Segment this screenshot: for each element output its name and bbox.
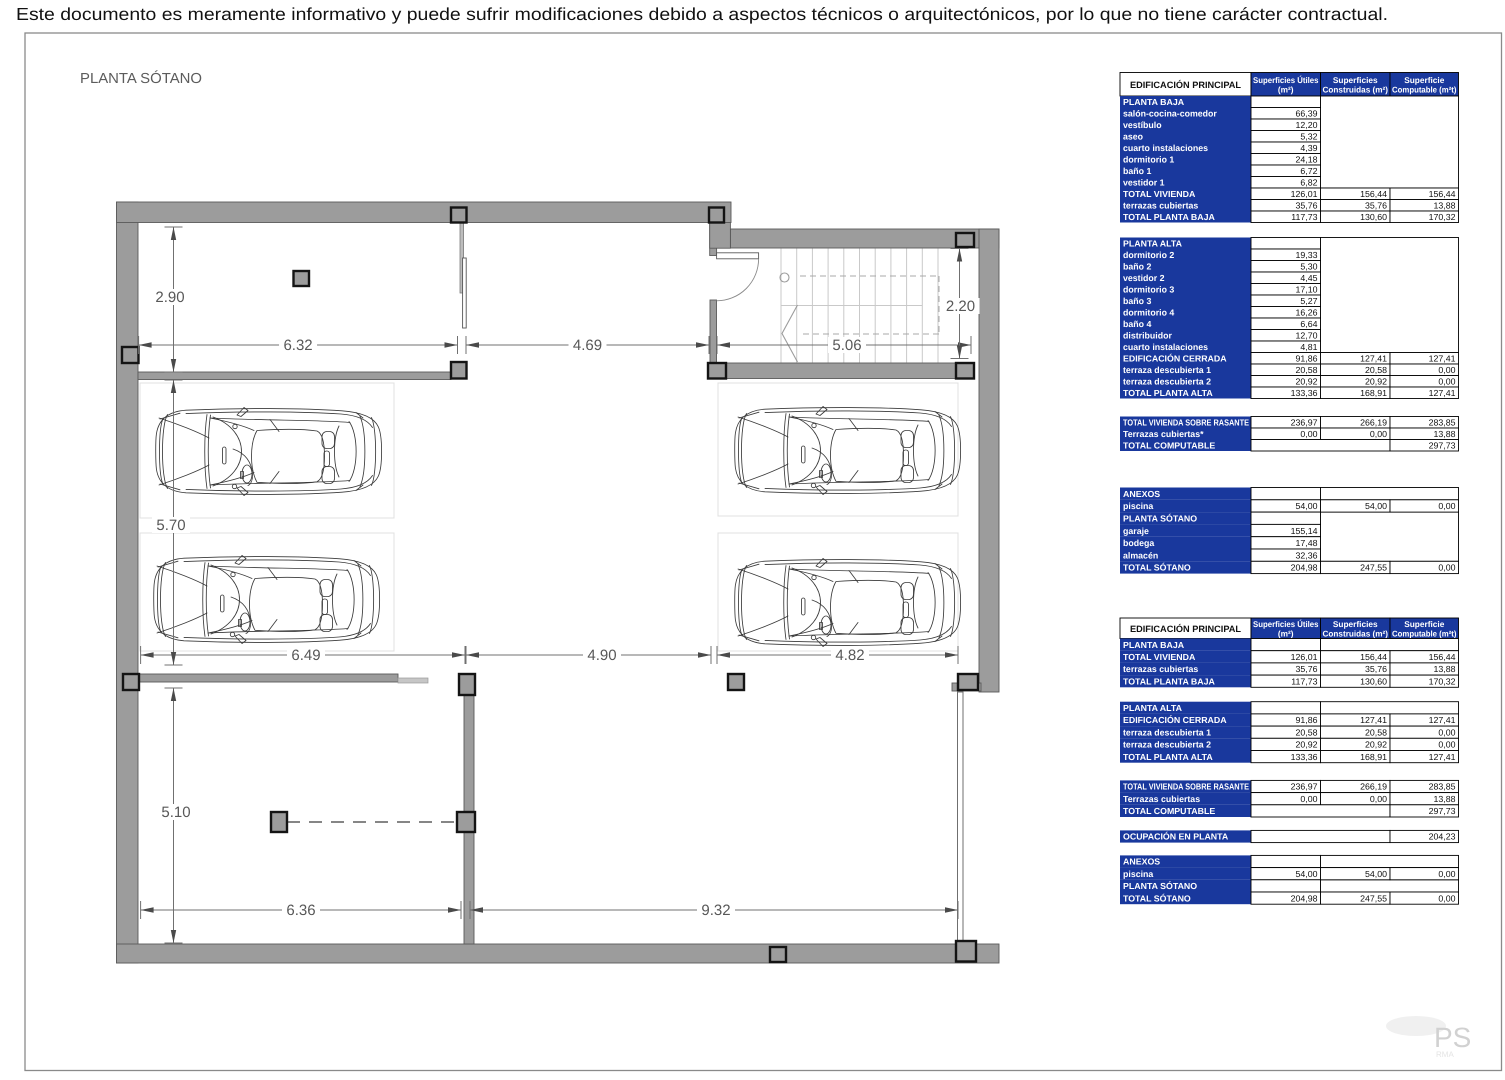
- svg-text:2.20: 2.20: [946, 298, 975, 315]
- svg-text:Construidas (m²): Construidas (m²): [1323, 629, 1389, 639]
- svg-text:12,20: 12,20: [1295, 120, 1317, 130]
- svg-text:Superficies Útiles: Superficies Útiles: [1253, 619, 1319, 629]
- svg-text:distribuidor: distribuidor: [1123, 330, 1172, 340]
- svg-text:19,33: 19,33: [1295, 250, 1317, 260]
- svg-text:terraza descubierta 1: terraza descubierta 1: [1123, 365, 1211, 375]
- svg-text:almacén: almacén: [1123, 550, 1158, 560]
- svg-text:0,00: 0,00: [1438, 376, 1455, 386]
- svg-text:TOTAL PLANTA ALTA: TOTAL PLANTA ALTA: [1123, 752, 1213, 762]
- svg-text:dormitorio 1: dormitorio 1: [1123, 154, 1174, 164]
- svg-text:EDIFICACIÓN CERRADA: EDIFICACIÓN CERRADA: [1123, 353, 1227, 363]
- svg-text:168,91: 168,91: [1360, 752, 1387, 762]
- svg-text:133,36: 133,36: [1291, 388, 1318, 398]
- svg-text:156,44: 156,44: [1360, 652, 1387, 662]
- svg-text:297,73: 297,73: [1429, 806, 1456, 816]
- svg-text:4.82: 4.82: [835, 647, 864, 664]
- svg-text:EDIFICACIÓN CERRADA: EDIFICACIÓN CERRADA: [1123, 715, 1227, 725]
- svg-text:TOTAL PLANTA ALTA: TOTAL PLANTA ALTA: [1123, 388, 1213, 398]
- svg-text:PLANTA ALTA: PLANTA ALTA: [1123, 703, 1183, 713]
- svg-text:54,00: 54,00: [1365, 869, 1387, 879]
- svg-text:(m²): (m²): [1278, 629, 1294, 639]
- svg-text:TOTAL SÓTANO: TOTAL SÓTANO: [1123, 563, 1191, 573]
- svg-text:PLANTA SÓTANO: PLANTA SÓTANO: [1123, 513, 1197, 523]
- svg-text:126,01: 126,01: [1291, 189, 1318, 199]
- svg-text:133,36: 133,36: [1291, 752, 1318, 762]
- svg-text:Superficie: Superficie: [1404, 619, 1445, 629]
- svg-text:266,19: 266,19: [1360, 782, 1387, 792]
- svg-text:0,00: 0,00: [1438, 727, 1455, 737]
- svg-text:54,00: 54,00: [1295, 869, 1317, 879]
- svg-text:0,00: 0,00: [1438, 501, 1455, 511]
- svg-text:dormitorio 2: dormitorio 2: [1123, 250, 1174, 260]
- svg-text:terraza descubierta 1: terraza descubierta 1: [1123, 727, 1211, 737]
- svg-text:dormitorio 3: dormitorio 3: [1123, 284, 1174, 294]
- svg-text:20,58: 20,58: [1295, 727, 1317, 737]
- svg-text:54,00: 54,00: [1295, 501, 1317, 511]
- svg-text:117,73: 117,73: [1291, 212, 1317, 222]
- svg-text:35,76: 35,76: [1365, 200, 1387, 210]
- svg-text:20,58: 20,58: [1295, 365, 1317, 375]
- svg-text:terraza descubierta 2: terraza descubierta 2: [1123, 376, 1211, 386]
- svg-text:TOTAL VIVIENDA SOBRE RASANTE: TOTAL VIVIENDA SOBRE RASANTE: [1123, 417, 1249, 427]
- svg-text:236,97: 236,97: [1291, 782, 1318, 792]
- svg-text:204,98: 204,98: [1291, 893, 1318, 903]
- svg-text:66,39: 66,39: [1295, 108, 1317, 118]
- svg-text:127,41: 127,41: [1360, 353, 1387, 363]
- svg-text:piscina: piscina: [1123, 501, 1153, 511]
- svg-text:PLANTA SÓTANO: PLANTA SÓTANO: [1123, 881, 1197, 891]
- svg-text:127,41: 127,41: [1429, 752, 1456, 762]
- svg-text:20,92: 20,92: [1295, 740, 1317, 750]
- svg-text:0,00: 0,00: [1438, 365, 1455, 375]
- svg-text:236,97: 236,97: [1291, 417, 1318, 427]
- svg-text:0,00: 0,00: [1438, 893, 1455, 903]
- svg-text:126,01: 126,01: [1291, 652, 1318, 662]
- svg-text:vestidor 1: vestidor 1: [1123, 177, 1165, 187]
- svg-text:130,60: 130,60: [1360, 676, 1387, 686]
- svg-text:0,00: 0,00: [1438, 740, 1455, 750]
- svg-text:4,81: 4,81: [1300, 342, 1317, 352]
- svg-text:TOTAL VIVIENDA: TOTAL VIVIENDA: [1123, 652, 1196, 662]
- svg-text:TOTAL PLANTA BAJA: TOTAL PLANTA BAJA: [1123, 676, 1216, 686]
- svg-text:24,18: 24,18: [1295, 154, 1317, 164]
- svg-text:ANEXOS: ANEXOS: [1123, 489, 1160, 499]
- svg-text:bodega: bodega: [1123, 538, 1154, 548]
- svg-text:168,91: 168,91: [1360, 388, 1387, 398]
- svg-text:117,73: 117,73: [1291, 676, 1317, 686]
- svg-text:0,00: 0,00: [1300, 794, 1317, 804]
- svg-text:6,64: 6,64: [1300, 319, 1317, 329]
- svg-text:Terrazas cubiertas*: Terrazas cubiertas*: [1123, 429, 1204, 439]
- svg-text:32,36: 32,36: [1295, 550, 1317, 560]
- svg-text:PS: PS: [1434, 1022, 1471, 1053]
- svg-text:5.10: 5.10: [161, 804, 190, 821]
- svg-text:TOTAL PLANTA BAJA: TOTAL PLANTA BAJA: [1123, 212, 1216, 222]
- svg-text:cuarto instalaciones: cuarto instalaciones: [1123, 143, 1208, 153]
- svg-text:156,44: 156,44: [1360, 189, 1387, 199]
- svg-text:16,26: 16,26: [1295, 307, 1317, 317]
- svg-text:TOTAL VIVIENDA: TOTAL VIVIENDA: [1123, 189, 1196, 199]
- svg-text:127,41: 127,41: [1429, 715, 1456, 725]
- svg-text:155,14: 155,14: [1291, 526, 1318, 536]
- svg-text:TOTAL VIVIENDA SOBRE RASANTE: TOTAL VIVIENDA SOBRE RASANTE: [1123, 782, 1249, 792]
- svg-text:Construidas (m²): Construidas (m²): [1323, 85, 1389, 95]
- svg-text:aseo: aseo: [1123, 131, 1144, 141]
- svg-text:204,23: 204,23: [1429, 832, 1456, 842]
- svg-text:247,55: 247,55: [1360, 893, 1387, 903]
- svg-text:13,88: 13,88: [1433, 429, 1455, 439]
- svg-text:vestíbulo: vestíbulo: [1123, 120, 1162, 130]
- svg-text:35,76: 35,76: [1295, 664, 1317, 674]
- svg-text:5,30: 5,30: [1300, 261, 1317, 271]
- svg-text:20,58: 20,58: [1365, 727, 1387, 737]
- svg-text:PLANTA ALTA: PLANTA ALTA: [1123, 238, 1183, 248]
- svg-text:13,88: 13,88: [1433, 664, 1455, 674]
- svg-text:283,85: 283,85: [1429, 782, 1456, 792]
- svg-text:PLANTA SÓTANO: PLANTA SÓTANO: [80, 70, 202, 87]
- svg-text:9.32: 9.32: [701, 902, 730, 919]
- svg-text:Superficies: Superficies: [1333, 75, 1378, 85]
- svg-text:127,41: 127,41: [1429, 353, 1456, 363]
- svg-text:91,86: 91,86: [1295, 715, 1317, 725]
- svg-text:5.06: 5.06: [832, 337, 861, 354]
- svg-text:170,32: 170,32: [1429, 212, 1456, 222]
- svg-text:13,88: 13,88: [1433, 794, 1455, 804]
- svg-text:127,41: 127,41: [1360, 715, 1387, 725]
- svg-text:Superficies: Superficies: [1333, 619, 1378, 629]
- svg-text:EDIFICACIÓN PRINCIPAL: EDIFICACIÓN PRINCIPAL: [1130, 79, 1241, 90]
- svg-text:6.36: 6.36: [286, 902, 315, 919]
- svg-text:5,32: 5,32: [1300, 131, 1317, 141]
- svg-text:baño 3: baño 3: [1123, 296, 1151, 306]
- svg-text:OCUPACIÓN EN PLANTA: OCUPACIÓN EN PLANTA: [1123, 832, 1229, 842]
- svg-text:piscina: piscina: [1123, 869, 1153, 879]
- svg-text:TOTAL SÓTANO: TOTAL SÓTANO: [1123, 893, 1191, 903]
- svg-text:0,00: 0,00: [1438, 869, 1455, 879]
- svg-text:cuarto instalaciones: cuarto instalaciones: [1123, 342, 1208, 352]
- svg-text:salón-cocina-comedor: salón-cocina-comedor: [1123, 108, 1217, 118]
- svg-text:20,92: 20,92: [1365, 376, 1387, 386]
- svg-text:Este documento es meramente in: Este documento es meramente informativo …: [16, 4, 1388, 24]
- svg-text:4,45: 4,45: [1300, 273, 1317, 283]
- svg-text:0,00: 0,00: [1370, 429, 1387, 439]
- svg-text:baño 2: baño 2: [1123, 261, 1151, 271]
- svg-text:baño 1: baño 1: [1123, 166, 1151, 176]
- svg-text:156,44: 156,44: [1429, 652, 1456, 662]
- svg-text:baño 4: baño 4: [1123, 319, 1151, 329]
- svg-text:(m²): (m²): [1278, 85, 1294, 95]
- svg-text:4.69: 4.69: [573, 337, 602, 354]
- svg-text:13,88: 13,88: [1433, 200, 1455, 210]
- svg-text:156,44: 156,44: [1429, 189, 1456, 199]
- svg-text:266,19: 266,19: [1360, 417, 1387, 427]
- svg-text:terrazas cubiertas: terrazas cubiertas: [1123, 664, 1198, 674]
- svg-text:RMA: RMA: [1436, 1050, 1454, 1059]
- svg-text:Computable (m²t): Computable (m²t): [1392, 629, 1457, 639]
- svg-text:297,73: 297,73: [1429, 440, 1456, 450]
- svg-text:garaje: garaje: [1123, 526, 1149, 536]
- svg-text:dormitorio 4: dormitorio 4: [1123, 307, 1174, 317]
- svg-text:6,72: 6,72: [1300, 166, 1317, 176]
- svg-text:Superficie: Superficie: [1404, 75, 1445, 85]
- svg-text:20,92: 20,92: [1365, 740, 1387, 750]
- svg-text:283,85: 283,85: [1429, 417, 1456, 427]
- svg-text:TOTAL COMPUTABLE: TOTAL COMPUTABLE: [1123, 806, 1215, 816]
- svg-text:170,32: 170,32: [1429, 676, 1456, 686]
- svg-text:PLANTA BAJA: PLANTA BAJA: [1123, 97, 1185, 107]
- svg-text:54,00: 54,00: [1365, 501, 1387, 511]
- svg-text:20,58: 20,58: [1365, 365, 1387, 375]
- svg-text:Terrazas cubiertas: Terrazas cubiertas: [1123, 794, 1200, 804]
- svg-text:4,39: 4,39: [1300, 143, 1317, 153]
- svg-text:vestidor 2: vestidor 2: [1123, 273, 1165, 283]
- svg-text:204,98: 204,98: [1291, 563, 1318, 573]
- svg-text:6.49: 6.49: [291, 647, 320, 664]
- svg-text:5,27: 5,27: [1300, 296, 1317, 306]
- svg-text:17,10: 17,10: [1295, 284, 1317, 294]
- svg-text:0,00: 0,00: [1438, 563, 1455, 573]
- svg-text:35,76: 35,76: [1365, 664, 1387, 674]
- svg-text:ANEXOS: ANEXOS: [1123, 857, 1160, 867]
- svg-text:12,70: 12,70: [1295, 330, 1317, 340]
- svg-text:130,60: 130,60: [1360, 212, 1387, 222]
- svg-text:PLANTA BAJA: PLANTA BAJA: [1123, 640, 1185, 650]
- svg-text:2.90: 2.90: [155, 289, 184, 306]
- svg-text:TOTAL COMPUTABLE: TOTAL COMPUTABLE: [1123, 440, 1215, 450]
- svg-text:terrazas cubiertas: terrazas cubiertas: [1123, 200, 1198, 210]
- svg-text:91,86: 91,86: [1295, 353, 1317, 363]
- svg-text:35,76: 35,76: [1295, 200, 1317, 210]
- svg-text:Computable (m²t): Computable (m²t): [1392, 85, 1457, 95]
- svg-text:6,82: 6,82: [1300, 177, 1317, 187]
- svg-text:20,92: 20,92: [1295, 376, 1317, 386]
- svg-text:Superficies Útiles: Superficies Útiles: [1253, 75, 1319, 85]
- svg-text:247,55: 247,55: [1360, 563, 1387, 573]
- svg-text:terraza descubierta 2: terraza descubierta 2: [1123, 740, 1211, 750]
- svg-text:6.32: 6.32: [283, 337, 312, 354]
- svg-text:4.90: 4.90: [587, 647, 616, 664]
- svg-text:0,00: 0,00: [1300, 429, 1317, 439]
- svg-text:127,41: 127,41: [1429, 388, 1456, 398]
- svg-text:5.70: 5.70: [156, 517, 185, 534]
- svg-text:0,00: 0,00: [1370, 794, 1387, 804]
- svg-text:EDIFICACIÓN PRINCIPAL: EDIFICACIÓN PRINCIPAL: [1130, 623, 1241, 634]
- svg-text:17,48: 17,48: [1295, 538, 1317, 548]
